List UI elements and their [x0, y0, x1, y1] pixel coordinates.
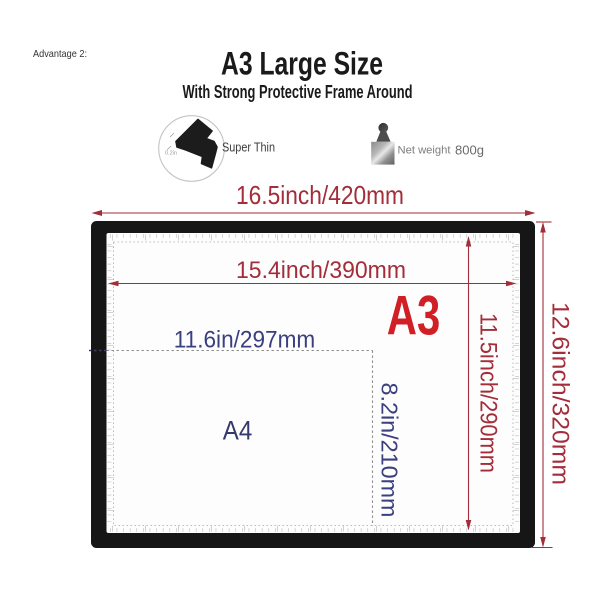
- svg-text:Super Thin: Super Thin: [222, 141, 275, 155]
- svg-text:12.6inch/320mm: 12.6inch/320mm: [547, 302, 574, 485]
- svg-text:11.6in/297mm: 11.6in/297mm: [174, 327, 316, 354]
- svg-text:Advantage 2:: Advantage 2:: [33, 48, 87, 60]
- svg-text:800g: 800g: [455, 144, 484, 158]
- svg-text:With Strong Protective Frame A: With Strong Protective Frame Around: [183, 81, 413, 102]
- svg-text:A3 Large Size: A3 Large Size: [221, 46, 383, 82]
- svg-text:8.2in/210mm: 8.2in/210mm: [377, 383, 403, 518]
- svg-text:A3: A3: [387, 284, 441, 347]
- svg-text:A4: A4: [223, 416, 253, 446]
- svg-text:16.5inch/420mm: 16.5inch/420mm: [236, 180, 404, 210]
- svg-text:11.5inch/290mm: 11.5inch/290mm: [475, 313, 502, 473]
- svg-text:Net weight: Net weight: [398, 145, 451, 157]
- svg-text:15.4inch/390mm: 15.4inch/390mm: [236, 257, 406, 284]
- svg-text:0.2in: 0.2in: [165, 151, 177, 157]
